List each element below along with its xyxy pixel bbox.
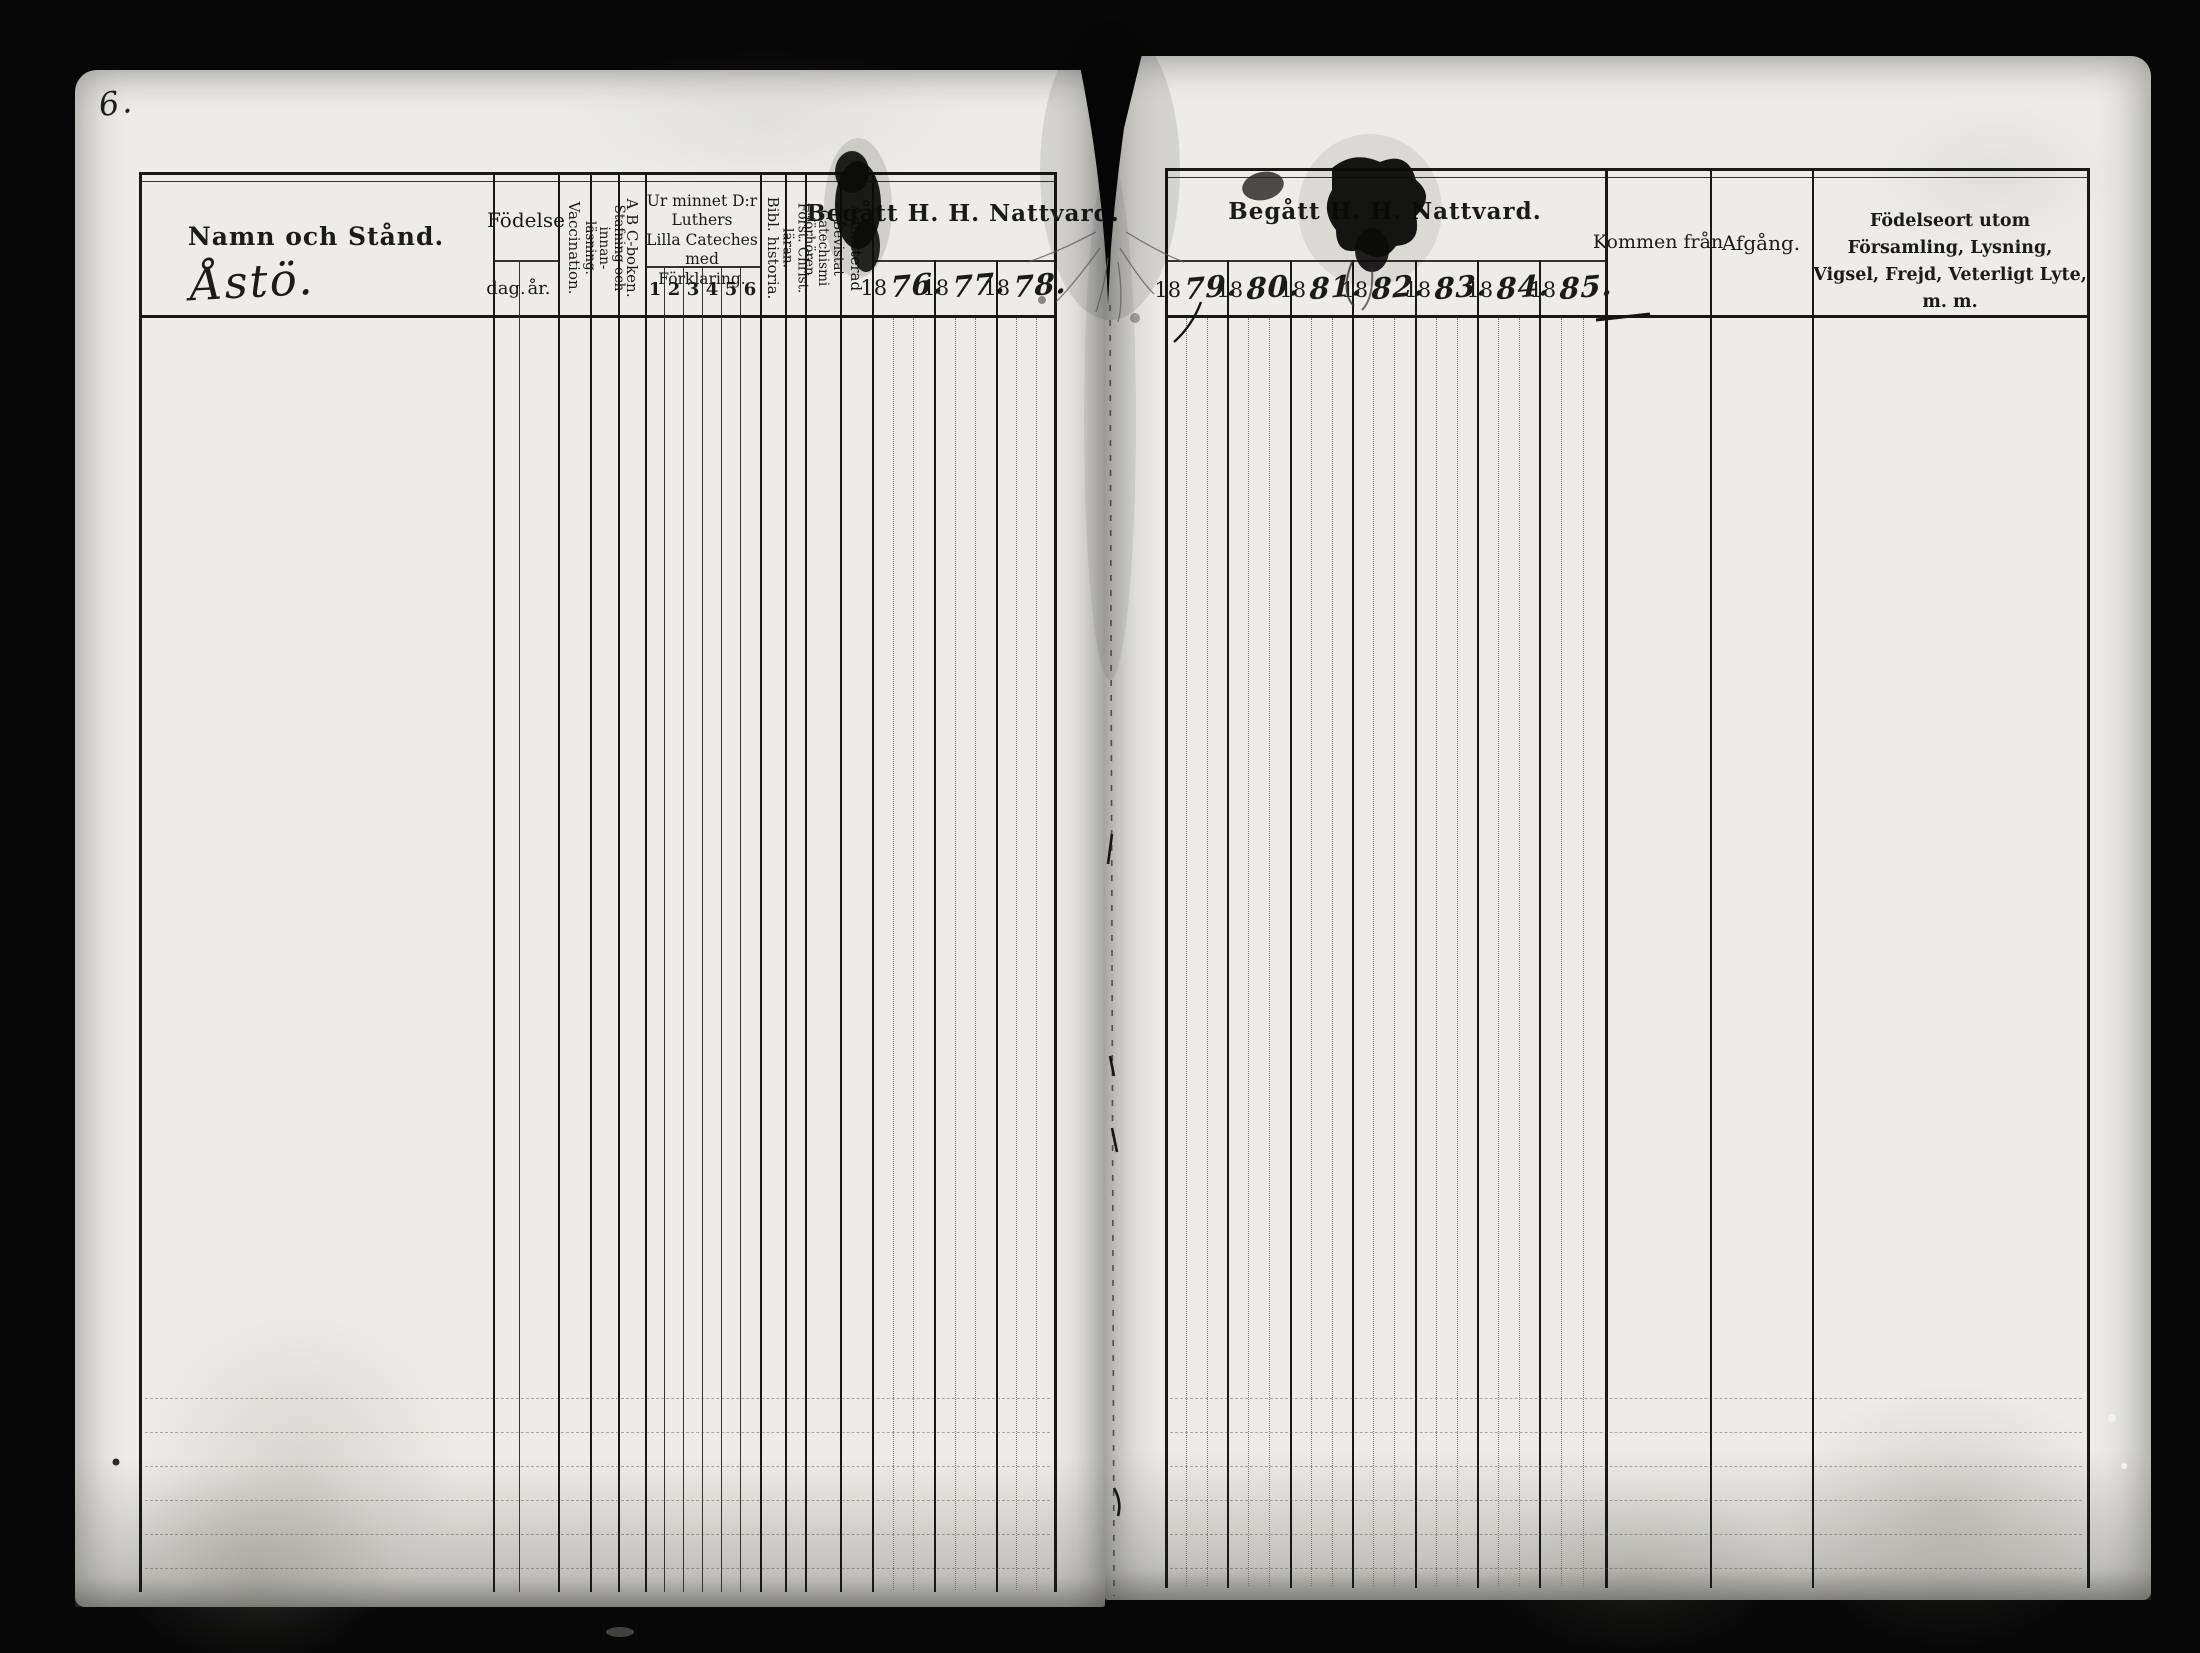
vaccination-label: Vaccination.: [566, 181, 582, 314]
subcol-6: 6: [744, 279, 757, 300]
table-rule: [145, 1466, 1050, 1467]
table-rule: [1170, 1466, 2082, 1467]
table-rule: [934, 260, 936, 1592]
table-rule: [1561, 318, 1563, 1586]
table-rule: [2087, 168, 2090, 1588]
year-printed: 18: [983, 276, 1010, 300]
table-rule: [1457, 318, 1459, 1586]
col-header-namn-och-stand: Namn och Stånd.: [188, 222, 444, 251]
table-rule: [145, 1568, 1050, 1569]
year-handwritten: 85.: [1559, 268, 1613, 307]
bibl-historia-label: Bibl. historia.: [764, 181, 780, 314]
table-rule: [493, 172, 495, 1592]
subcol-2: 2: [668, 279, 681, 300]
table-rule: [139, 172, 1057, 175]
table-rule: [645, 172, 647, 1592]
col-header-abc-boken: A B C-boken.: [618, 181, 645, 314]
scanned-ledger-spread: 6. Namn och Stånd. Åstö. Födelse dag. år…: [0, 0, 2200, 1653]
col-header-fodelseort: Födelseort utom Församling, Lysning, Vig…: [1813, 208, 2087, 317]
year-printed: 18: [1216, 278, 1243, 302]
col-header-kommen-fran: Kommen från: [1593, 231, 1723, 253]
col-header-stafning: Stafning och innan- läsning.: [590, 181, 618, 314]
year-cell-1885: 18 85.: [1529, 270, 1612, 304]
col-header-ur-minnet: Ur minnet D:r Luthers Lilla Cateches med…: [645, 192, 759, 289]
table-rule: [139, 172, 142, 1592]
table-rule: [139, 315, 1057, 318]
table-rule: [683, 266, 684, 1592]
col-header-begatt-nattvard-right: Begått H. H. Nattvard.: [1228, 198, 1541, 225]
col-header-fodelse: Födelse: [487, 208, 565, 232]
table-rule: [996, 260, 998, 1592]
subcol-1: 1: [649, 279, 662, 300]
table-rule: [1394, 318, 1396, 1586]
year-cell-1878: 18 78.: [983, 268, 1066, 302]
folio-number: 6.: [96, 82, 135, 124]
stafning-line2: läsning.: [582, 181, 597, 314]
table-rule: [893, 318, 895, 1590]
col-header-begatt-nattvard-left: Begått H. H. Nattvard.: [806, 200, 1119, 227]
table-rule: [1311, 318, 1313, 1586]
table-rule: [1165, 168, 1168, 1588]
table-rule: [975, 318, 977, 1590]
col-header-ar: år.: [527, 278, 550, 299]
table-rule: [872, 172, 874, 1592]
year-printed: 18: [1341, 278, 1368, 302]
edge-fleck: [606, 1627, 634, 1637]
table-rule: [913, 318, 915, 1590]
table-rule: [1036, 318, 1038, 1590]
table-rule: [145, 1398, 1050, 1399]
table-rule: [1207, 318, 1209, 1586]
table-rule: [702, 266, 703, 1592]
year-printed: 18: [1529, 278, 1556, 302]
subcol-4: 4: [706, 279, 719, 300]
table-rule: [1415, 260, 1417, 1588]
table-rule: [740, 266, 741, 1592]
table-rule: [145, 1534, 1050, 1535]
year-printed: 18: [1466, 278, 1493, 302]
year-printed: 18: [1404, 278, 1431, 302]
fodelseort-line2: Vigsel, Frejd, Veterligt Lyte, m. m.: [1813, 262, 2087, 316]
table-rule: [1373, 318, 1375, 1586]
table-rule: [1519, 318, 1521, 1586]
year-printed: 18: [922, 276, 949, 300]
col-header-dag: dag.: [486, 278, 526, 299]
year-printed: 18: [1279, 278, 1306, 302]
table-rule: [1170, 1398, 2082, 1399]
table-rule: [493, 260, 558, 262]
ur-minnet-line2: Lilla Cateches med: [645, 231, 759, 270]
table-rule: [1170, 1568, 2082, 1569]
table-rule: [1165, 168, 2090, 171]
subcol-5: 5: [725, 279, 738, 300]
table-rule: [664, 266, 665, 1592]
table-rule: [872, 260, 1057, 262]
table-rule: [558, 172, 560, 1592]
table-rule: [1054, 172, 1057, 1592]
table-rule: [1583, 318, 1585, 1586]
table-rule: [1436, 318, 1438, 1586]
handwritten-entry-place: Åstö.: [189, 252, 316, 311]
table-rule: [1290, 260, 1292, 1588]
table-rule: [760, 172, 762, 1592]
table-rule: [1812, 168, 1814, 1588]
table-rule: [1186, 318, 1188, 1586]
year-handwritten: 78.: [1013, 266, 1067, 305]
paper-stain: [555, 50, 975, 190]
table-rule: [805, 172, 807, 1592]
table-rule: [618, 172, 620, 1592]
table-rule: [1539, 260, 1541, 1588]
table-rule: [1227, 260, 1229, 1588]
table-rule: [1170, 1534, 2082, 1535]
table-rule: [1332, 318, 1334, 1586]
table-rule: [840, 172, 842, 1592]
year-printed: 18: [860, 276, 887, 300]
table-rule: [1170, 1432, 2082, 1433]
table-rule: [590, 172, 592, 1592]
table-rule: [1710, 168, 1712, 1588]
table-rule: [1269, 318, 1271, 1586]
table-rule: [1248, 318, 1250, 1586]
table-rule: [1016, 318, 1018, 1590]
table-rule: [955, 318, 957, 1590]
ur-minnet-line3: Förklaring.: [645, 270, 759, 289]
abc-boken-label: A B C-boken.: [623, 181, 639, 314]
subcol-3: 3: [687, 279, 700, 300]
table-rule: [1165, 177, 2090, 178]
year-printed: 18: [1154, 278, 1181, 302]
table-rule: [1498, 318, 1500, 1586]
table-rule: [519, 260, 520, 1592]
table-rule: [721, 266, 722, 1592]
table-rule: [1352, 260, 1354, 1588]
col-header-afgang: Afgång.: [1722, 231, 1800, 255]
ur-minnet-line1: Ur minnet D:r Luthers: [645, 192, 759, 231]
table-rule: [1170, 1500, 2082, 1501]
table-rule: [1605, 168, 1608, 1588]
fodelseort-line1: Födelseort utom Församling, Lysning,: [1813, 208, 2087, 262]
table-rule: [145, 1500, 1050, 1501]
table-rule: [785, 172, 787, 1592]
page-bottom-shadow: [1105, 1450, 2151, 1600]
table-rule: [1477, 260, 1479, 1588]
table-rule: [145, 1432, 1050, 1433]
